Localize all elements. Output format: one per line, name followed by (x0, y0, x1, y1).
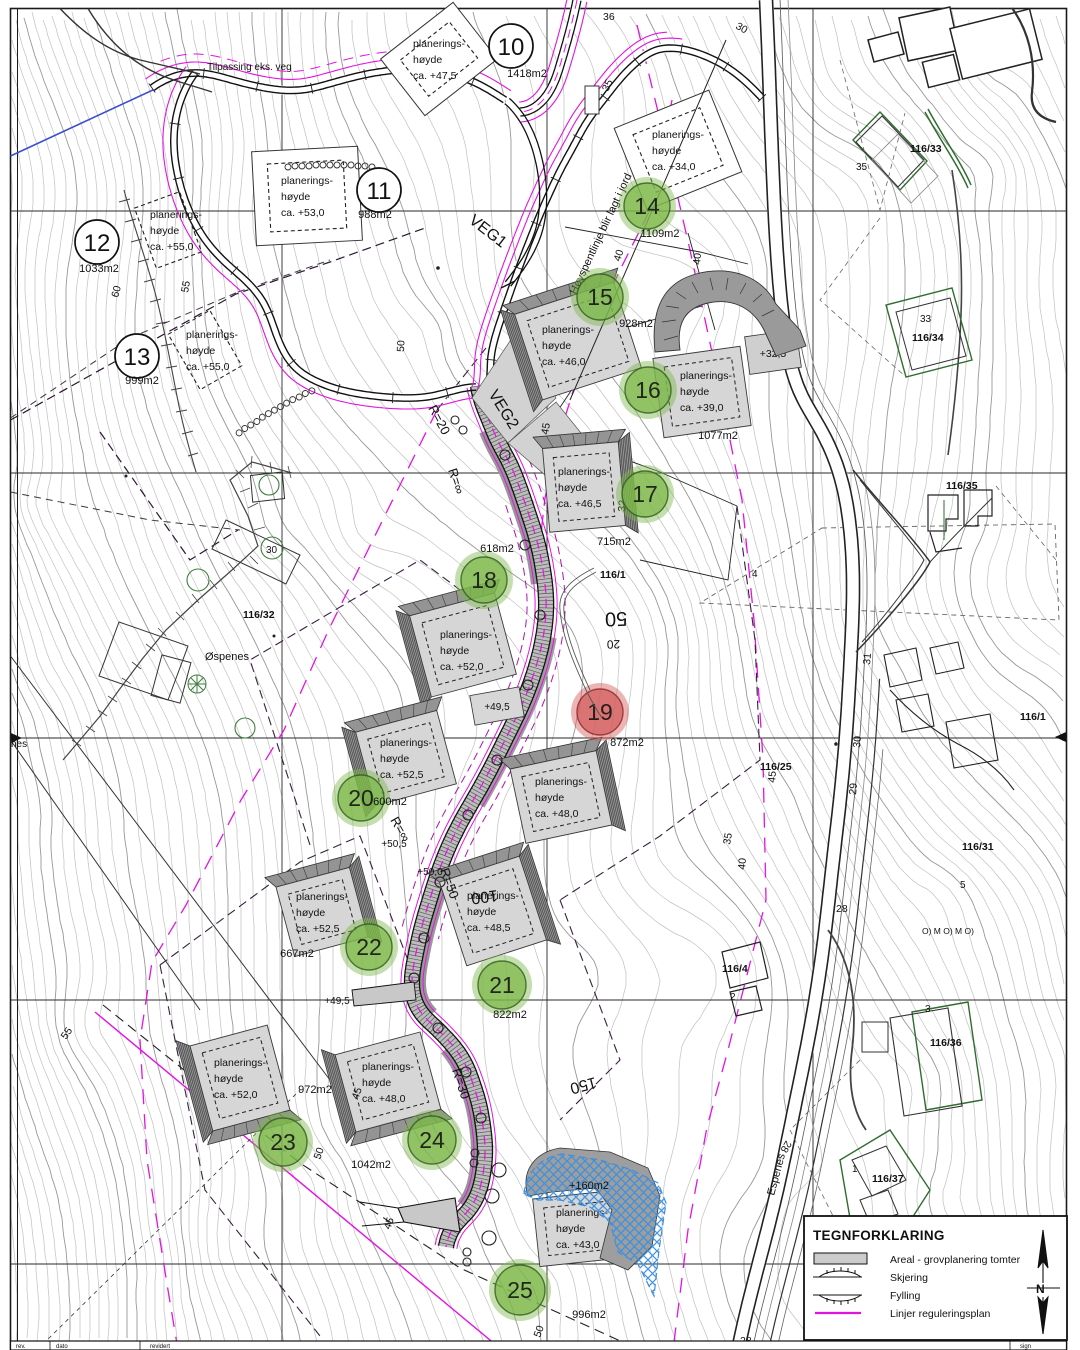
svg-text:23: 23 (270, 1129, 296, 1155)
svg-text:ca. +34,0: ca. +34,0 (652, 161, 696, 173)
svg-text:28: 28 (836, 903, 848, 915)
svg-text:11: 11 (367, 178, 392, 205)
svg-text:18: 18 (471, 567, 497, 593)
svg-text:1077m2: 1077m2 (698, 430, 738, 442)
svg-text:116/1: 116/1 (600, 569, 626, 581)
svg-text:planerings-: planerings- (542, 324, 594, 336)
svg-text:ca. +53,0: ca. +53,0 (281, 207, 325, 219)
svg-text:4: 4 (752, 569, 758, 580)
svg-text:1: 1 (852, 1164, 858, 1175)
svg-text:planerings-: planerings- (281, 175, 333, 187)
svg-text:planerings-: planerings- (440, 629, 492, 641)
svg-text:planerings-: planerings- (652, 129, 704, 141)
svg-text:33: 33 (920, 314, 932, 325)
svg-text:+49,5: +49,5 (324, 996, 350, 1007)
svg-text:36: 36 (603, 11, 615, 23)
svg-text:31: 31 (861, 652, 874, 665)
svg-text:40: 40 (736, 857, 749, 870)
svg-text:55: 55 (179, 280, 193, 294)
svg-text:ca. +48,5: ca. +48,5 (467, 922, 511, 934)
svg-text:1109m2: 1109m2 (641, 228, 680, 240)
svg-text:høyde: høyde (558, 482, 587, 494)
svg-text:3: 3 (925, 1004, 931, 1015)
svg-text:35: 35 (856, 162, 868, 173)
svg-text:116/37: 116/37 (872, 1173, 904, 1185)
svg-text:+49,5: +49,5 (484, 702, 510, 713)
svg-text:høyde: høyde (652, 145, 681, 157)
svg-text:planerings-: planerings- (150, 209, 202, 221)
svg-text:116/34: 116/34 (912, 332, 944, 344)
svg-text:14: 14 (634, 193, 660, 219)
svg-text:planerings-: planerings- (380, 737, 432, 749)
svg-text:40: 40 (691, 252, 704, 265)
svg-text:16: 16 (635, 377, 661, 403)
svg-text:116/1: 116/1 (1020, 711, 1046, 723)
svg-text:116/35: 116/35 (946, 480, 978, 492)
svg-text:ca. +46,5: ca. +46,5 (558, 498, 602, 510)
svg-text:ca. +43,0: ca. +43,0 (556, 1239, 600, 1251)
svg-text:116/33: 116/33 (910, 143, 942, 155)
svg-text:116/4: 116/4 (722, 963, 748, 975)
svg-text:Skjering: Skjering (890, 1272, 928, 1284)
svg-text:1418m2: 1418m2 (507, 68, 547, 80)
svg-text:planerings-: planerings- (362, 1061, 414, 1073)
svg-text:22: 22 (356, 934, 382, 960)
svg-text:+160m2: +160m2 (569, 1180, 609, 1192)
svg-text:116/36: 116/36 (930, 1037, 962, 1049)
svg-text:høyde: høyde (281, 191, 310, 203)
svg-text:planerings-: planerings- (296, 891, 348, 903)
svg-text:planerings-: planerings- (186, 329, 238, 341)
svg-text:872m2: 872m2 (610, 737, 644, 749)
svg-text:sign: sign (1020, 1344, 1031, 1350)
svg-text:996m2: 996m2 (572, 1309, 606, 1321)
svg-text:1033m2: 1033m2 (79, 263, 119, 275)
svg-text:ca. +39,0: ca. +39,0 (680, 402, 724, 414)
svg-text:2: 2 (730, 992, 736, 1003)
svg-text:ca. +55,0: ca. +55,0 (150, 241, 194, 253)
svg-text:20: 20 (348, 785, 374, 811)
svg-text:ca. +47,5: ca. +47,5 (413, 70, 457, 82)
svg-text:høyde: høyde (362, 1077, 391, 1089)
svg-text:12: 12 (84, 230, 111, 257)
svg-text:høyde: høyde (542, 340, 571, 352)
svg-text:høyde: høyde (214, 1073, 243, 1085)
svg-text:Linjer reguleringsplan: Linjer reguleringsplan (890, 1308, 991, 1320)
svg-text:høyde: høyde (296, 907, 325, 919)
svg-text:1042m2: 1042m2 (351, 1159, 391, 1171)
svg-text:116/32: 116/32 (243, 609, 275, 621)
svg-text:999m2: 999m2 (125, 375, 159, 387)
svg-text:høyde: høyde (413, 54, 442, 66)
svg-text:667m2: 667m2 (280, 948, 314, 960)
svg-text:høyde: høyde (440, 645, 469, 657)
svg-text:5: 5 (960, 880, 966, 891)
svg-text:50: 50 (605, 607, 628, 630)
svg-text:29: 29 (847, 782, 860, 795)
svg-text:revidert: revidert (150, 1344, 170, 1350)
svg-text:30: 30 (851, 735, 864, 748)
svg-text:Areal - grovplanering tomter: Areal - grovplanering tomter (890, 1254, 1021, 1266)
svg-text:dato: dato (56, 1344, 68, 1350)
svg-text:N: N (1036, 1282, 1045, 1296)
svg-text:ca. +52,5: ca. +52,5 (380, 769, 424, 781)
svg-text:618m2: 618m2 (480, 543, 514, 555)
svg-text:ca. +55,0: ca. +55,0 (186, 361, 230, 373)
svg-text:planerings-: planerings- (413, 38, 465, 50)
svg-text:21: 21 (489, 972, 515, 998)
svg-text:600m2: 600m2 (373, 796, 407, 808)
svg-text:20: 20 (606, 637, 620, 651)
svg-text:høyde: høyde (467, 906, 496, 918)
svg-text:høyde: høyde (380, 753, 409, 765)
svg-text:Tilpassing eks. veg: Tilpassing eks. veg (207, 62, 292, 73)
svg-text:ca. +48,0: ca. +48,0 (535, 808, 579, 820)
svg-text:planerings-: planerings- (680, 370, 732, 382)
svg-text:ca. +48,0: ca. +48,0 (362, 1093, 406, 1105)
svg-text:planerings-: planerings- (214, 1057, 266, 1069)
svg-text:10: 10 (498, 34, 525, 61)
svg-text:35: 35 (721, 832, 735, 846)
svg-text:ca. +46,0: ca. +46,0 (542, 356, 586, 368)
svg-text:rev.: rev. (16, 1344, 26, 1350)
svg-text:24: 24 (419, 1127, 445, 1153)
svg-text:planerings-: planerings- (558, 466, 610, 478)
svg-text:822m2: 822m2 (493, 1009, 527, 1021)
svg-text:988m2: 988m2 (358, 209, 392, 221)
svg-text:ca. +52,0: ca. +52,0 (440, 661, 484, 673)
svg-text:715m2: 715m2 (597, 536, 631, 548)
svg-text:Fylling: Fylling (890, 1290, 921, 1302)
svg-text:17: 17 (632, 481, 658, 507)
svg-text:O) M O) M O): O) M O) M O) (922, 926, 974, 936)
svg-text:høyde: høyde (556, 1223, 585, 1235)
svg-text:19: 19 (587, 699, 613, 725)
svg-text:planerings-: planerings- (535, 776, 587, 788)
svg-text:45: 45 (539, 422, 553, 436)
svg-text:928m2: 928m2 (619, 318, 653, 330)
svg-text:høyde: høyde (186, 345, 215, 357)
svg-text:høyde: høyde (150, 225, 179, 237)
svg-text:nes: nes (11, 739, 27, 750)
svg-text:ca. +52,0: ca. +52,0 (214, 1089, 258, 1101)
svg-text:30: 30 (266, 545, 278, 556)
svg-text:116/25: 116/25 (760, 761, 792, 773)
svg-text:15: 15 (587, 284, 613, 310)
svg-text:Øspenes: Øspenes (205, 651, 250, 663)
svg-text:ca. +52,5: ca. +52,5 (296, 923, 340, 935)
svg-text:TEGNFORKLARING: TEGNFORKLARING (813, 1228, 945, 1243)
svg-text:972m2: 972m2 (298, 1084, 332, 1096)
svg-text:116/31: 116/31 (962, 841, 994, 853)
svg-text:50: 50 (395, 340, 407, 352)
svg-text:høyde: høyde (680, 386, 709, 398)
svg-text:høyde: høyde (535, 792, 564, 804)
svg-text:13: 13 (124, 344, 151, 371)
svg-text:25: 25 (507, 1277, 533, 1303)
